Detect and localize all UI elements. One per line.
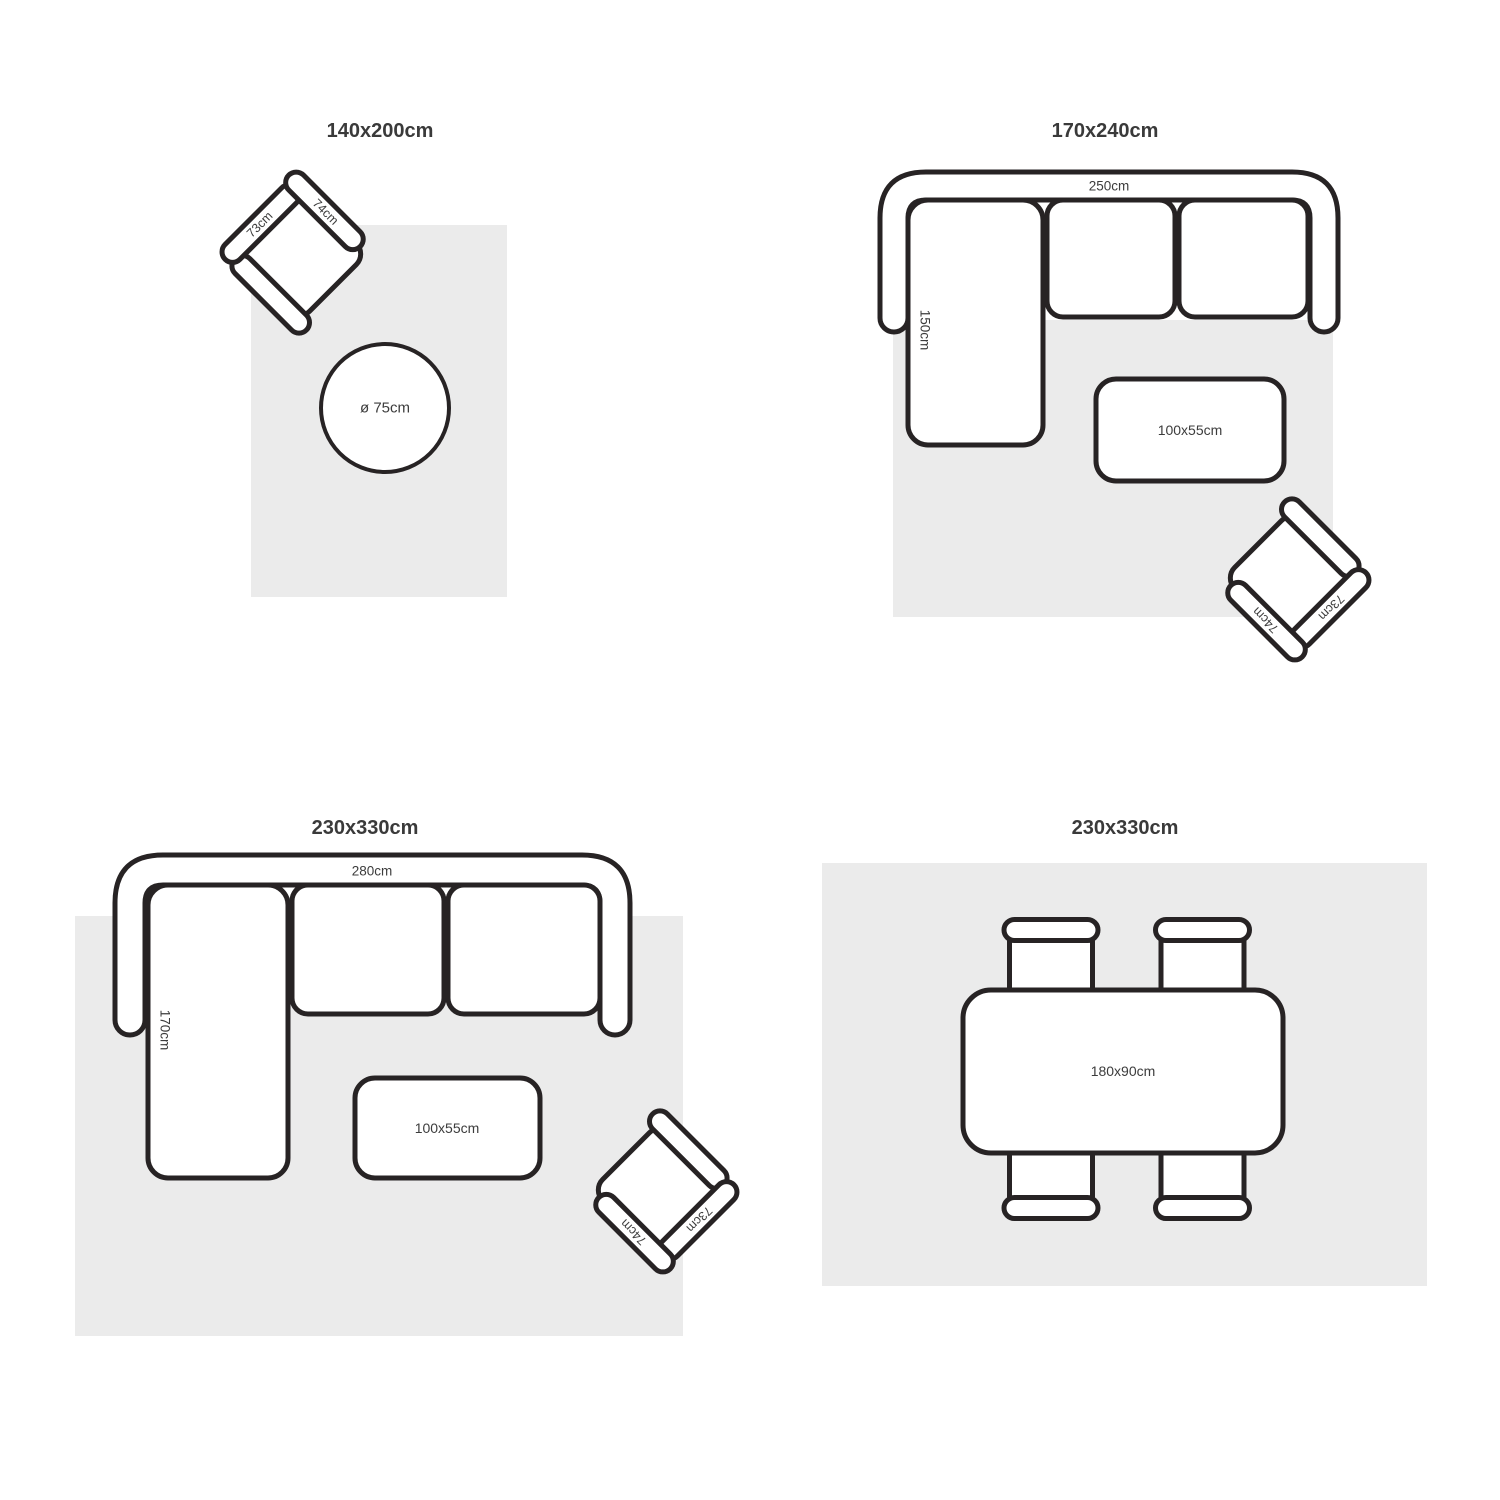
coffee-table-dimension-label: 100x55cm: [1158, 422, 1223, 438]
panel-rug-230x330-dining: 230x330cm 180x90cm: [822, 817, 1427, 1286]
round-side-table-dimension-label: ø 75cm: [360, 400, 410, 417]
sofa-width-dimension-label: 280cm: [352, 864, 393, 879]
diagram-canvas: 73cm 74cm 140x200cm ø 75cm 170x240cm 250…: [0, 0, 1500, 1500]
panel-rug-230x330-living: 230x330cm 280cm 170cm 100x55cm: [75, 817, 746, 1336]
coffee-table-dimension-label: 100x55cm: [415, 1120, 480, 1136]
panel-rug-170x240: 170x240cm 250cm 150cm 100x55cm: [880, 120, 1378, 664]
sofa-width-dimension-label: 250cm: [1089, 179, 1130, 194]
sofa-seat-cushion: [292, 885, 444, 1014]
panel-title: 230x330cm: [1072, 817, 1179, 839]
panel-title: 230x330cm: [312, 817, 419, 839]
sofa-seat-cushion: [448, 885, 600, 1014]
panel-rug-140x200: 140x200cm ø 75cm: [213, 120, 507, 597]
rug-size-guide-diagram: 73cm 74cm 140x200cm ø 75cm 170x240cm 250…: [0, 0, 1500, 1500]
sofa-chaise-dimension-label: 150cm: [918, 310, 933, 351]
sofa-chaise-dimension-label: 170cm: [158, 1010, 173, 1051]
panel-title: 170x240cm: [1052, 120, 1159, 142]
panel-title: 140x200cm: [327, 120, 434, 142]
dining-table-dimension-label: 180x90cm: [1091, 1063, 1156, 1079]
sofa-seat-cushion: [1047, 200, 1175, 317]
sofa-seat-cushion: [1179, 200, 1308, 317]
